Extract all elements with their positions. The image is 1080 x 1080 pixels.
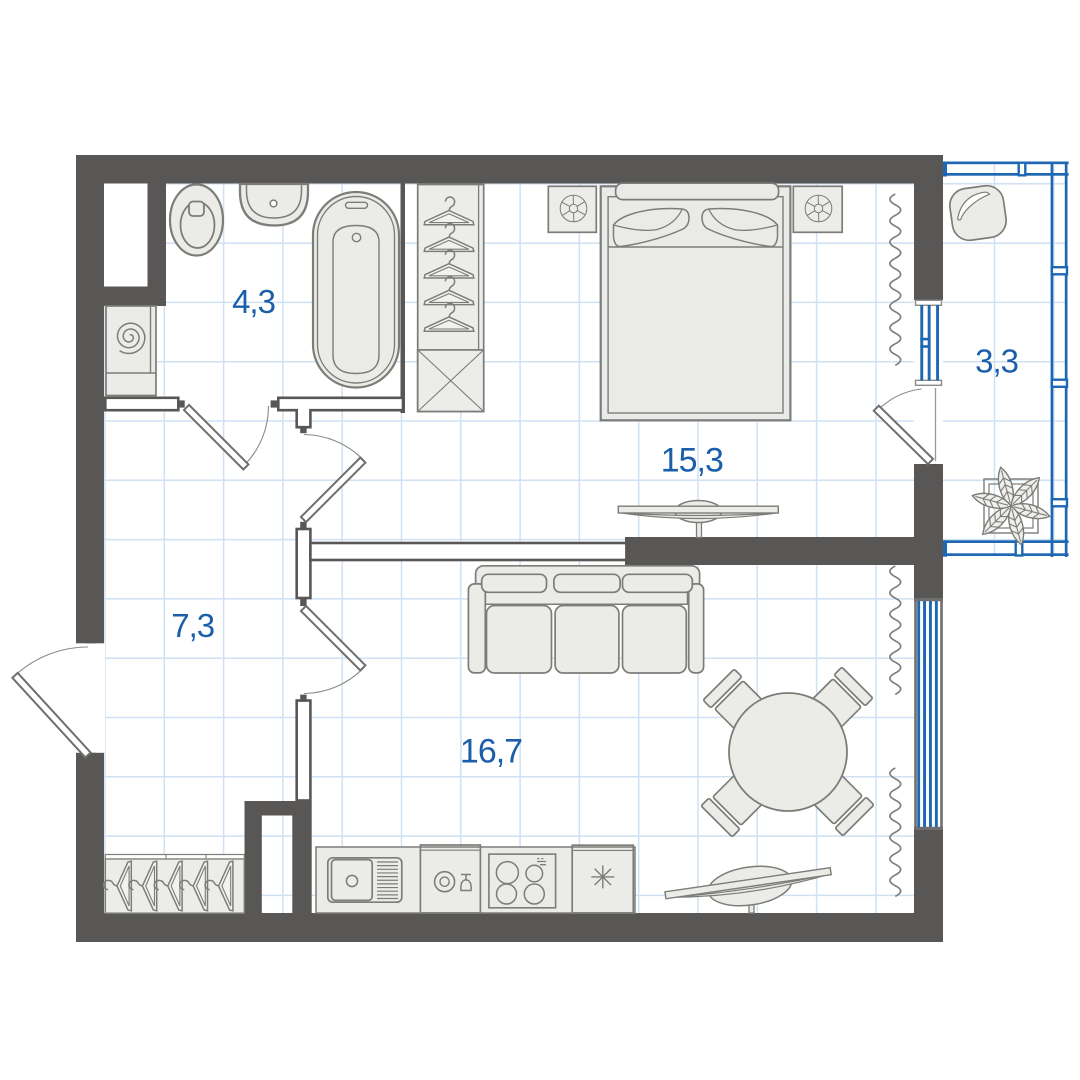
svg-text:4,3: 4,3 [232, 283, 275, 320]
svg-text:7,3: 7,3 [171, 607, 214, 644]
svg-text:3,3: 3,3 [975, 343, 1018, 380]
svg-text:16,7: 16,7 [460, 733, 522, 771]
svg-text:15,3: 15,3 [661, 442, 723, 480]
